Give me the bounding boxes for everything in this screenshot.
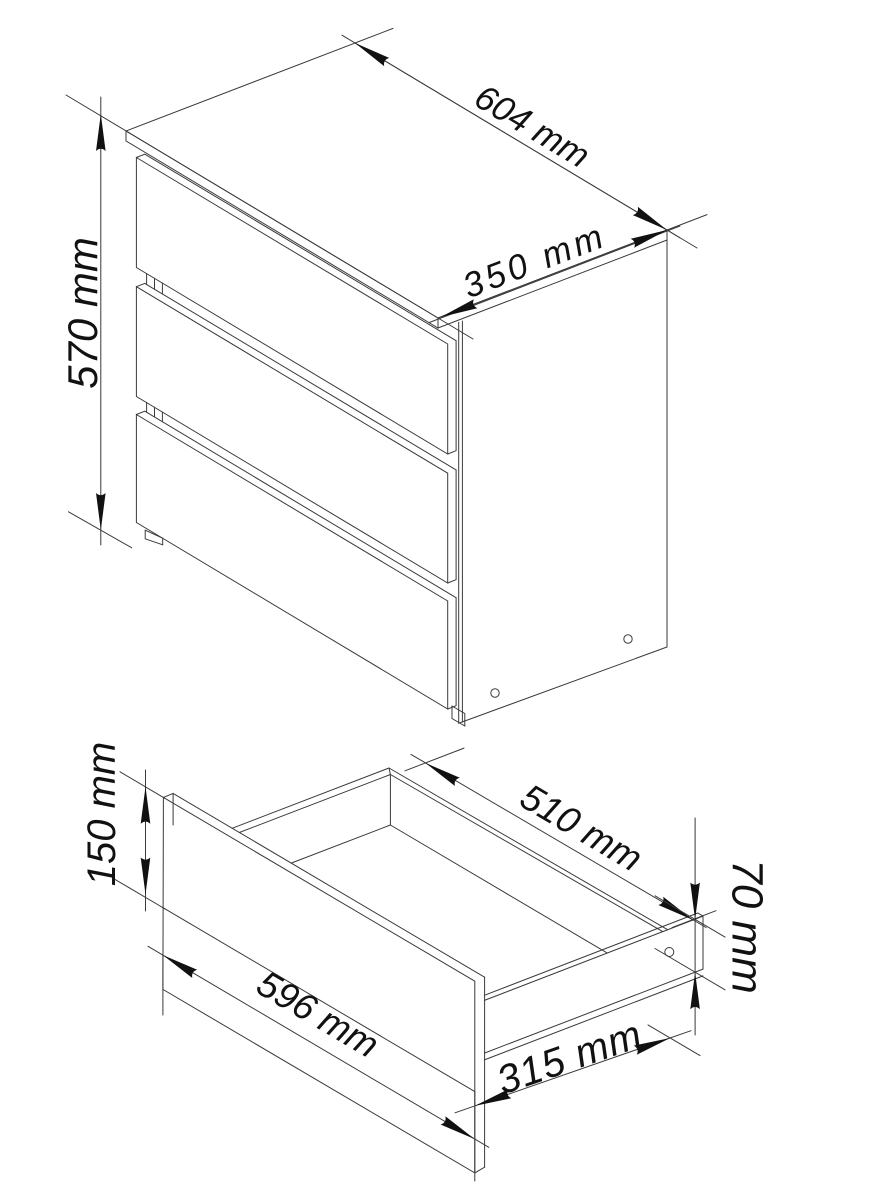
svg-text:596 mm: 596 mm [250, 963, 386, 1066]
svg-text:570 mm: 570 mm [59, 237, 106, 389]
svg-text:510 mm: 510 mm [513, 776, 649, 879]
svg-text:350 mm: 350 mm [457, 216, 611, 306]
svg-text:150 mm: 150 mm [80, 742, 124, 887]
svg-text:70 mm: 70 mm [722, 859, 771, 993]
svg-text:315 mm: 315 mm [491, 1012, 648, 1103]
svg-text:604 mm: 604 mm [468, 77, 596, 176]
